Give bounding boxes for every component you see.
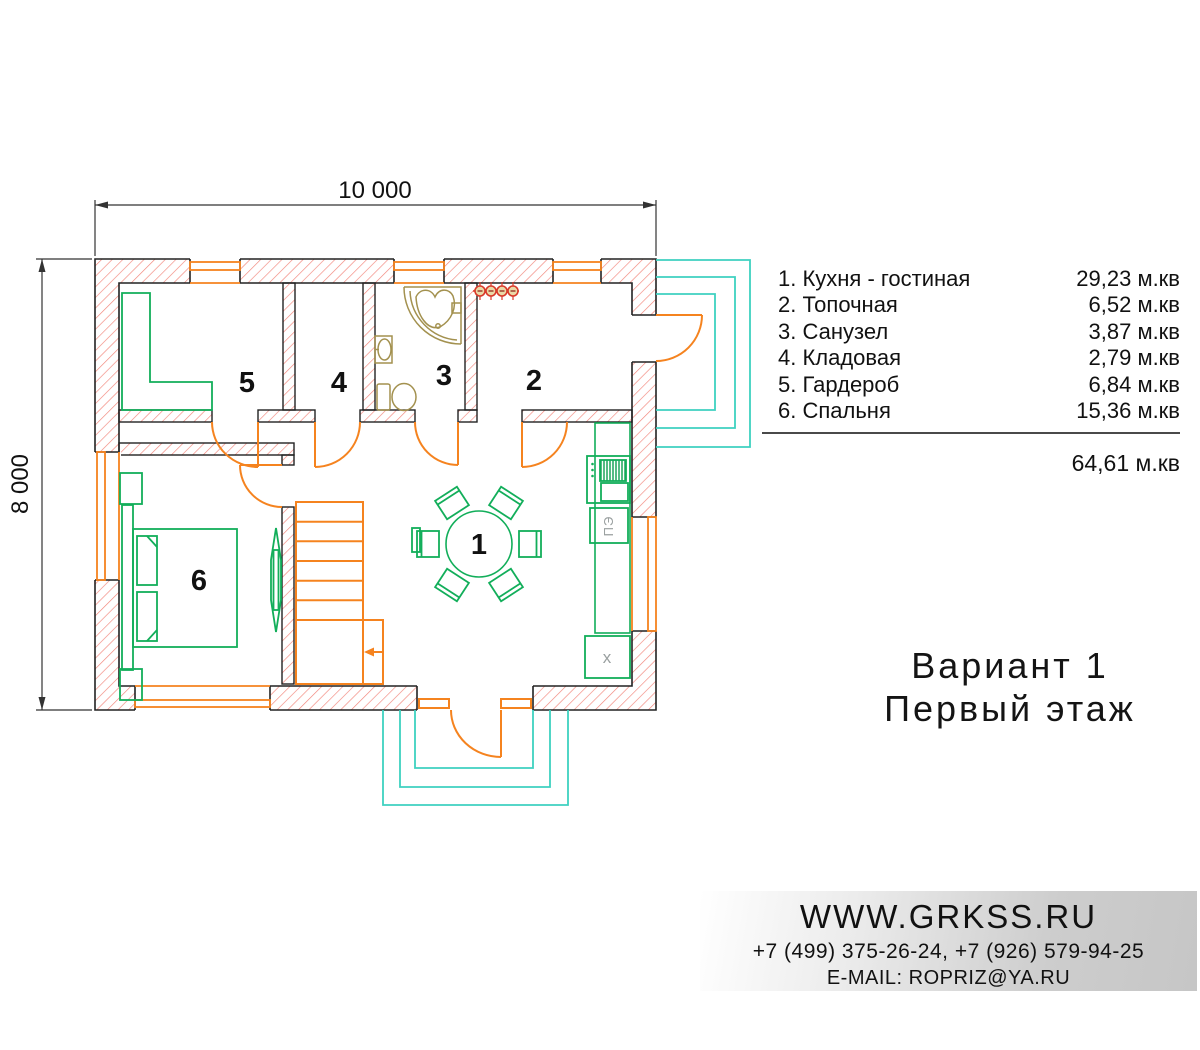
- washbasin: [375, 336, 392, 363]
- legend-divider: [762, 432, 1180, 434]
- title-floor: Первый этаж: [820, 687, 1200, 730]
- footer-contact-block: WWW.GRKSS.RU +7 (499) 375-26-24, +7 (926…: [700, 891, 1197, 991]
- room-number-2: 2: [526, 365, 542, 397]
- room-number-5: 5: [239, 367, 255, 399]
- dimension-top-label: 10 000: [338, 177, 411, 204]
- room-number-4: 4: [331, 367, 347, 399]
- legend-total: 64,61 м.кв: [778, 450, 1180, 477]
- windows: [97, 262, 656, 707]
- legend-room-area: 2,79 м.кв: [1089, 345, 1180, 371]
- door-room3: [415, 422, 458, 465]
- staircase: [296, 502, 383, 684]
- stove-label: ПЭ: [601, 516, 616, 537]
- legend-row: 1. Кухня - гостиная 29,23 м.кв: [778, 266, 1180, 292]
- wardrobe: [122, 293, 212, 410]
- title-variant: Вариант 1: [820, 644, 1200, 687]
- room-number-6: 6: [191, 565, 207, 597]
- email-address: E-MAIL: ROPRIZ@YA.RU: [700, 967, 1197, 990]
- dimension-left-label: 8 000: [7, 454, 34, 514]
- porch-steps: [383, 260, 750, 805]
- porch-right: [656, 260, 750, 447]
- website-url: WWW.GRKSS.RU: [700, 898, 1197, 936]
- room-legend: 1. Кухня - гостиная 29,23 м.кв 2. Топочн…: [778, 266, 1180, 477]
- legend-room-area: 15,36 м.кв: [1076, 398, 1180, 424]
- legend-room-area: 3,87 м.кв: [1089, 319, 1180, 345]
- page: ПЭ x: [0, 0, 1200, 1050]
- toilet: [377, 384, 416, 411]
- legend-row: 3. Санузел 3,87 м.кв: [778, 319, 1180, 345]
- legend-row: 6. Спальня 15,36 м.кв: [778, 398, 1180, 424]
- door-exit-right: [656, 315, 702, 361]
- appliance-label: x: [603, 648, 612, 667]
- legend-room-area: 29,23 м.кв: [1076, 266, 1180, 292]
- kitchen-sink: [587, 456, 630, 503]
- chair: [519, 531, 541, 557]
- legend-room-label: 2. Топочная: [778, 292, 898, 318]
- room-number-3: 3: [436, 360, 452, 392]
- legend-row: 4. Кладовая 2,79 м.кв: [778, 345, 1180, 371]
- phone-numbers: +7 (499) 375-26-24, +7 (926) 579-94-25: [700, 940, 1197, 964]
- tv-bedroom: [271, 528, 281, 632]
- kitchen-appliance: x: [585, 636, 630, 678]
- kitchen-block: ПЭ x: [585, 423, 630, 678]
- legend-room-area: 6,52 м.кв: [1089, 292, 1180, 318]
- room-number-1: 1: [471, 529, 487, 561]
- legend-room-label: 3. Санузел: [778, 319, 888, 345]
- porch-bottom: [383, 710, 568, 805]
- legend-row: 5. Гардероб 6,84 м.кв: [778, 372, 1180, 398]
- legend-room-label: 4. Кладовая: [778, 345, 901, 371]
- legend-room-label: 1. Кухня - гостиная: [778, 266, 970, 292]
- bed: [120, 473, 237, 700]
- legend-room-label: 6. Спальня: [778, 398, 891, 424]
- corner-bathtub: [404, 287, 461, 344]
- legend-row: 2. Топочная 6,52 м.кв: [778, 292, 1180, 318]
- legend-room-area: 6,84 м.кв: [1089, 372, 1180, 398]
- door-room2-hall: [522, 422, 567, 467]
- door-bedroom: [240, 465, 282, 507]
- door-room4: [315, 422, 360, 467]
- legend-room-label: 5. Гардероб: [778, 372, 899, 398]
- drawing-title: Вариант 1 Первый этаж: [820, 644, 1200, 730]
- radiator: [473, 282, 519, 300]
- stair-direction-arrow: [364, 648, 374, 657]
